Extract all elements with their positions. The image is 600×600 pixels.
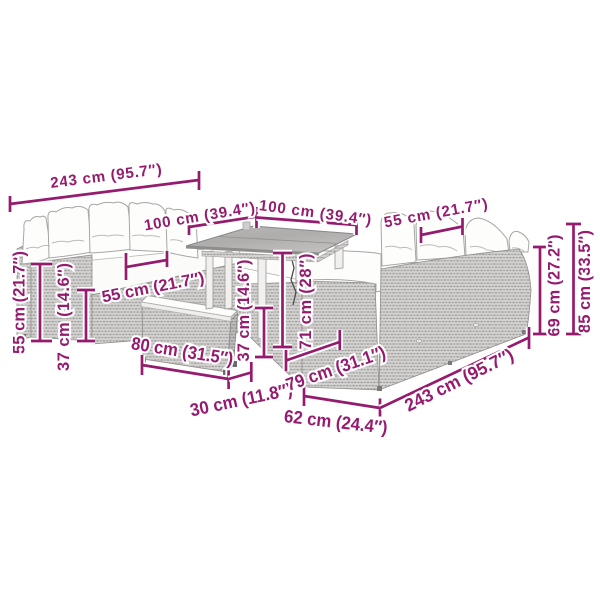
svg-text:71 cm (28″): 71 cm (28″) <box>297 254 315 350</box>
svg-text:55 cm (21.7″): 55 cm (21.7″) <box>11 251 29 354</box>
svg-text:37 cm (14.6″): 37 cm (14.6″) <box>235 260 253 362</box>
svg-text:30 cm (11.8″): 30 cm (11.8″) <box>188 379 294 420</box>
svg-text:100 cm (39.4″): 100 cm (39.4″) <box>143 199 256 234</box>
svg-text:37 cm (14.6″): 37 cm (14.6″) <box>55 263 73 371</box>
svg-text:62 cm (24.4″): 62 cm (24.4″) <box>283 406 389 438</box>
svg-text:69 cm (27.2″): 69 cm (27.2″) <box>546 235 564 337</box>
svg-text:85 cm (33.5″): 85 cm (33.5″) <box>576 230 594 333</box>
